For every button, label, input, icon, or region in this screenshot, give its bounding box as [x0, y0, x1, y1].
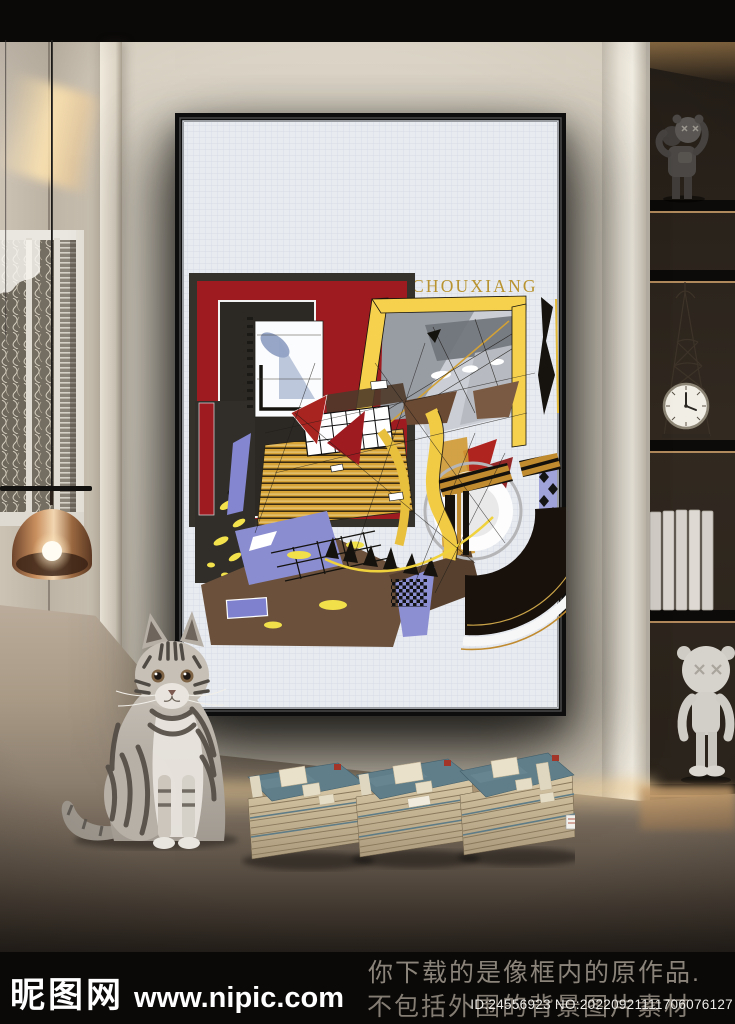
site-logo: 昵图网 www.nipic.com: [10, 967, 344, 1018]
lamp-arm: [0, 486, 92, 491]
book-stack: [458, 753, 575, 866]
lamp-cord: [5, 40, 6, 340]
book-stack: [242, 763, 374, 870]
watermark-bar: 昵图网 www.nipic.com 你下载的是像框内的原作品. 不包括外围的背景…: [0, 952, 735, 1024]
image-id-text: ID:24556923 NO:20220921111706076127: [470, 997, 733, 1012]
artwork-title: CHOUXIANG: [412, 276, 538, 296]
lamp-rod: [51, 40, 53, 488]
abstract-composition: [193, 277, 566, 649]
cat-head: [116, 611, 226, 709]
interior-mockup-scene: CHOUXIANG: [0, 0, 735, 1024]
shelf-side-wall: [602, 42, 648, 802]
price-tag: [566, 815, 575, 829]
lamp-bulb: [42, 541, 62, 561]
antique-book-stacks: [240, 745, 575, 950]
pendant-lamp: [0, 40, 100, 600]
white-books: [650, 510, 713, 610]
site-name: 昵图网: [10, 967, 124, 1018]
book-stack: [352, 759, 480, 868]
wall-pillar: [100, 42, 122, 664]
tabby-cat: [56, 597, 246, 852]
shelf-floor-light: [640, 786, 735, 830]
site-url: www.nipic.com: [134, 982, 344, 1015]
display-shelf: [646, 42, 735, 802]
watermark-notice-line1: 你下载的是像框内的原作品.: [368, 953, 701, 989]
